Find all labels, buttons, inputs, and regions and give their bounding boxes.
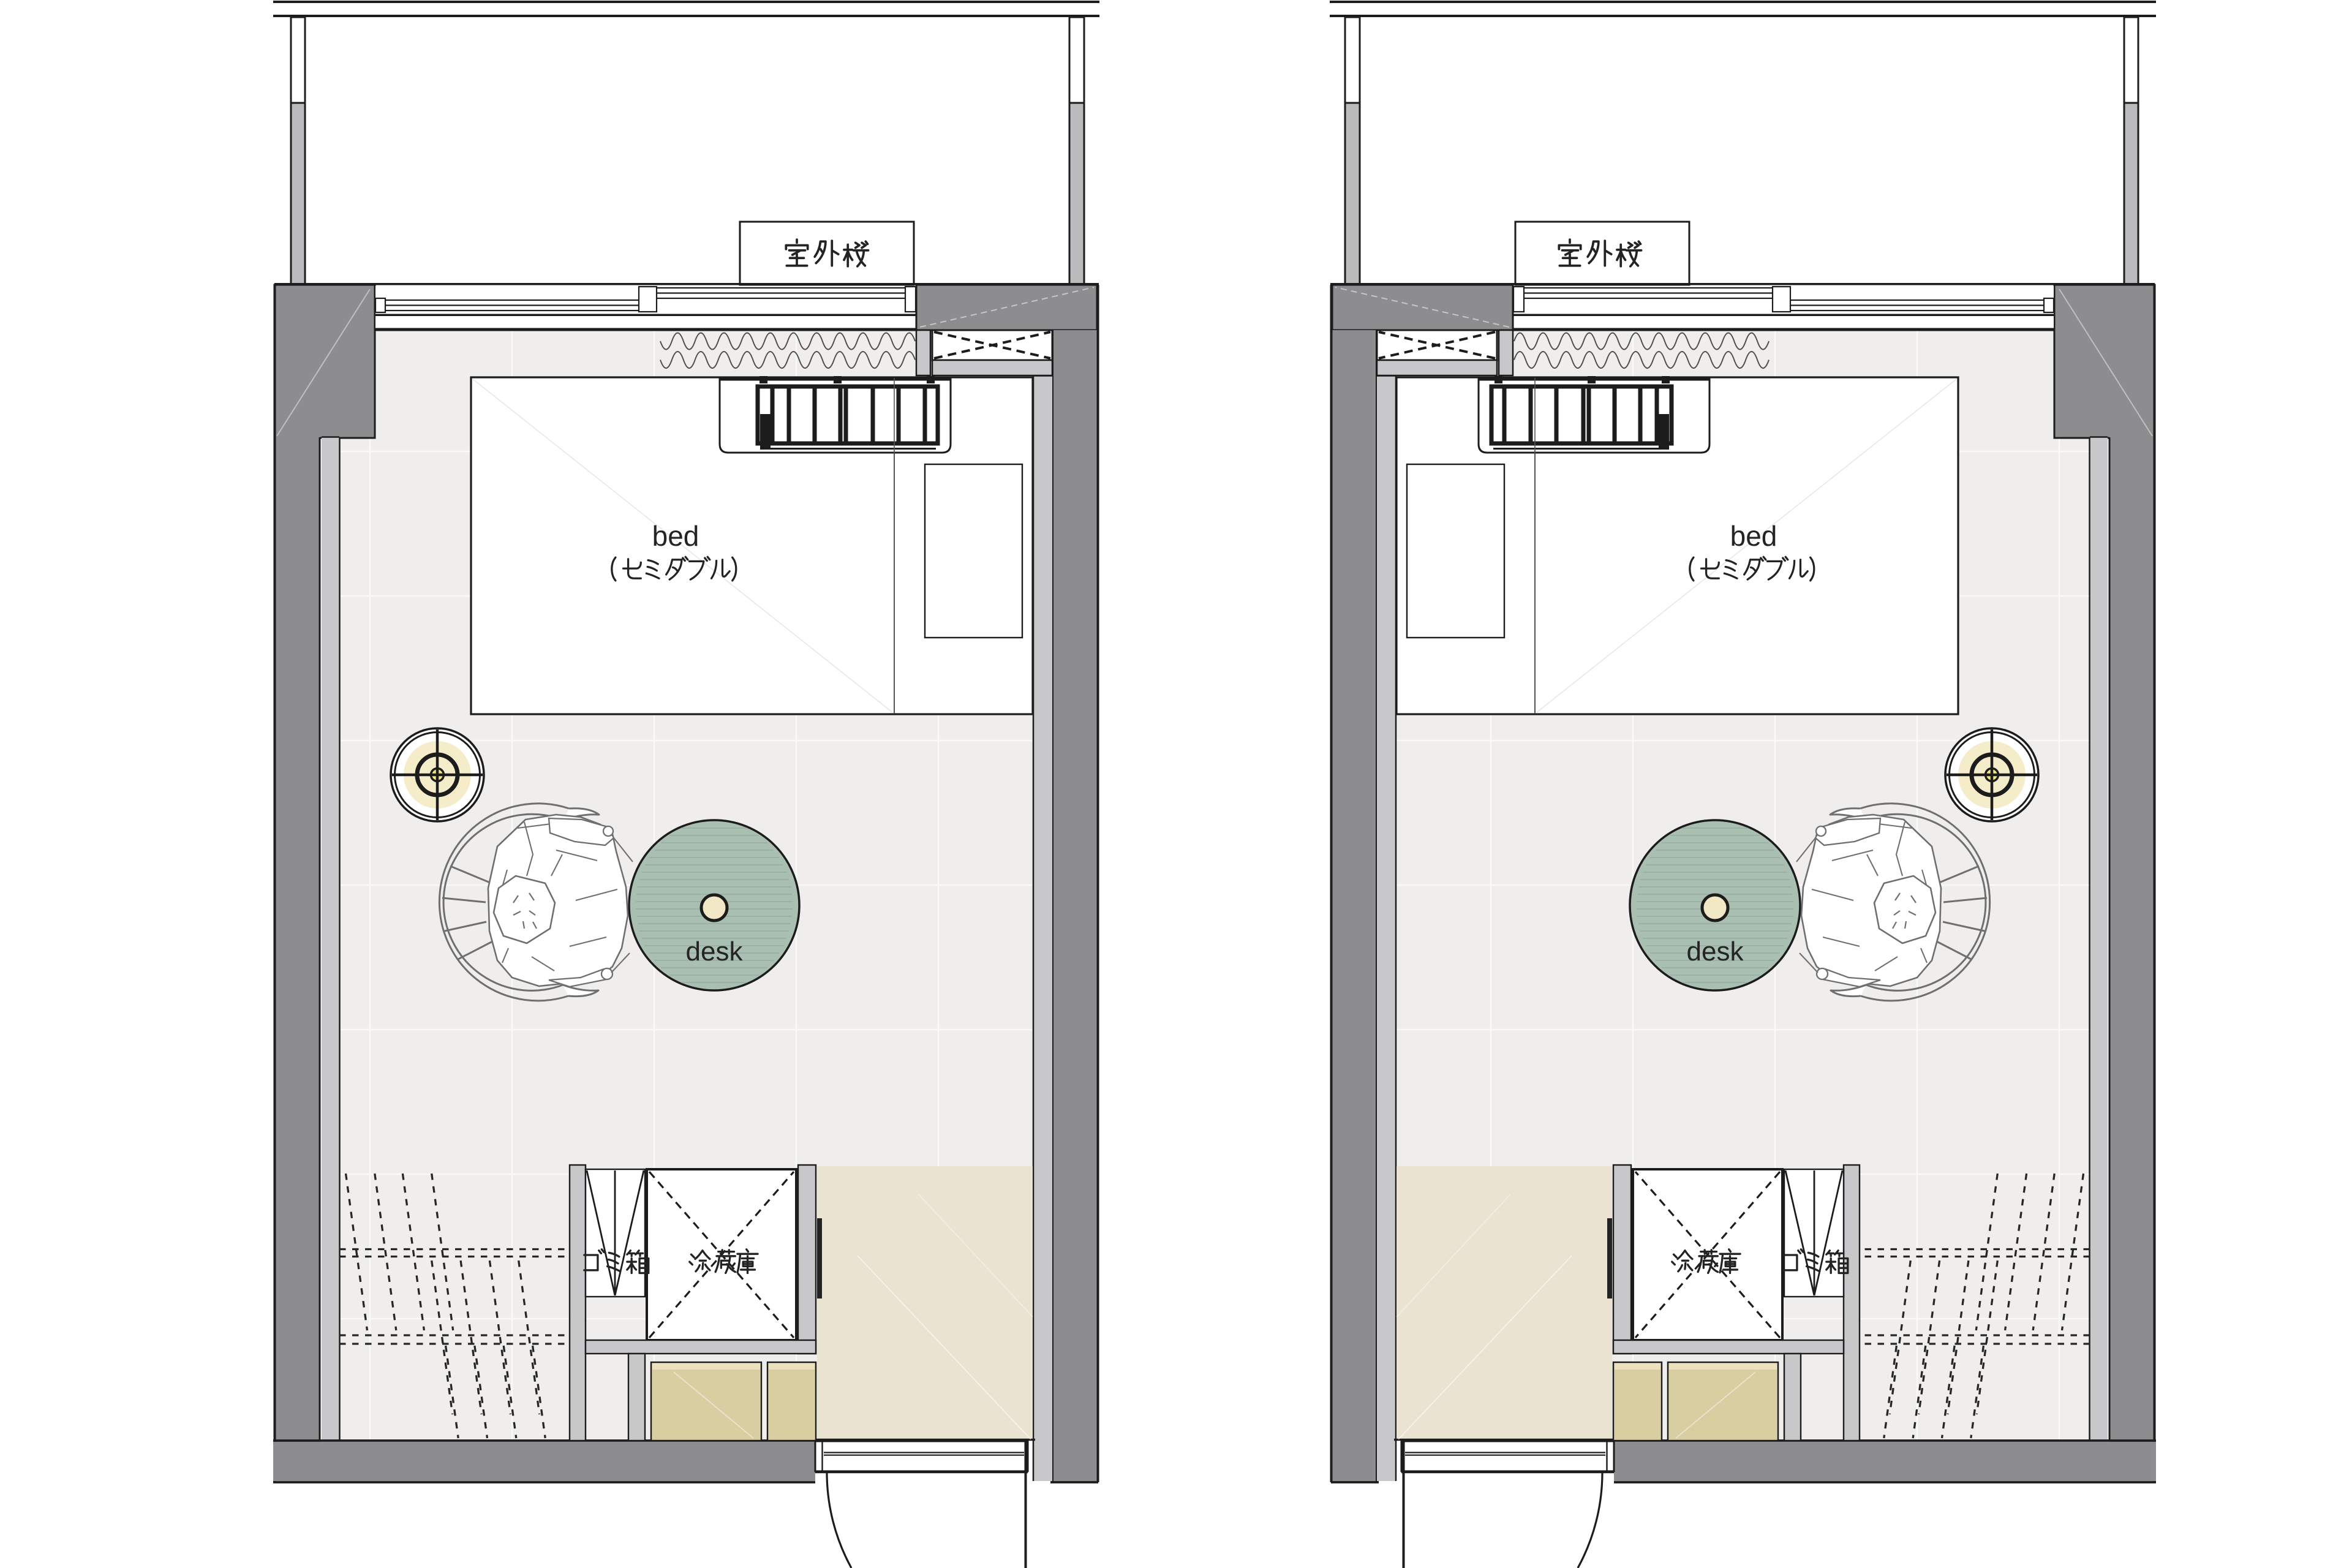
svg-text:bed: bed bbox=[652, 520, 699, 552]
svg-text:desk: desk bbox=[1687, 937, 1744, 967]
svg-text:bed: bed bbox=[1730, 520, 1777, 552]
svg-text:desk: desk bbox=[686, 937, 744, 967]
